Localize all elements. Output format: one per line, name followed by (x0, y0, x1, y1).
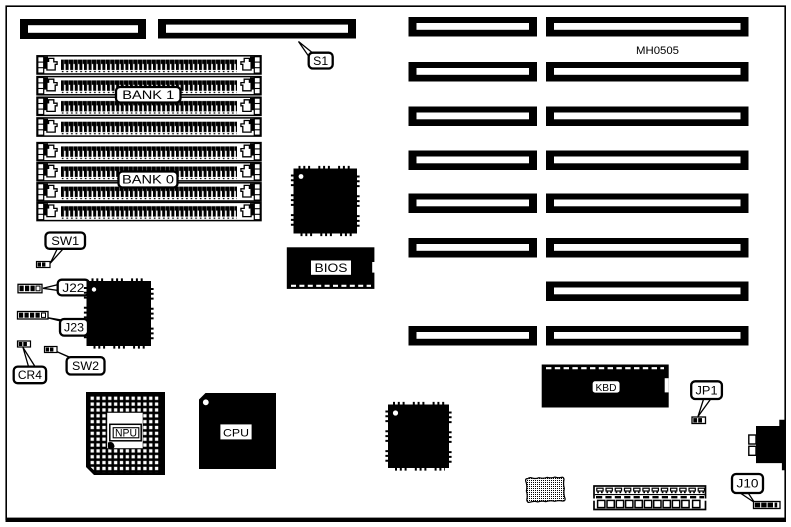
svg-text:CR4: CR4 (18, 368, 42, 382)
svg-text:BANK 0: BANK 0 (122, 173, 174, 187)
svg-text:SW1: SW1 (51, 234, 79, 248)
svg-text:S1: S1 (313, 54, 328, 68)
svg-text:MH0505: MH0505 (636, 45, 679, 57)
svg-text:J10: J10 (737, 477, 759, 491)
svg-text:CPU: CPU (223, 427, 249, 439)
svg-text:J23: J23 (64, 321, 84, 335)
svg-text:J22: J22 (62, 281, 84, 295)
svg-text:BIOS: BIOS (315, 263, 348, 275)
svg-text:NPU: NPU (115, 428, 137, 440)
svg-text:KBD: KBD (596, 382, 617, 394)
svg-text:JP1: JP1 (696, 383, 718, 397)
svg-text:BANK 1: BANK 1 (122, 88, 174, 102)
svg-text:SW2: SW2 (72, 359, 99, 373)
